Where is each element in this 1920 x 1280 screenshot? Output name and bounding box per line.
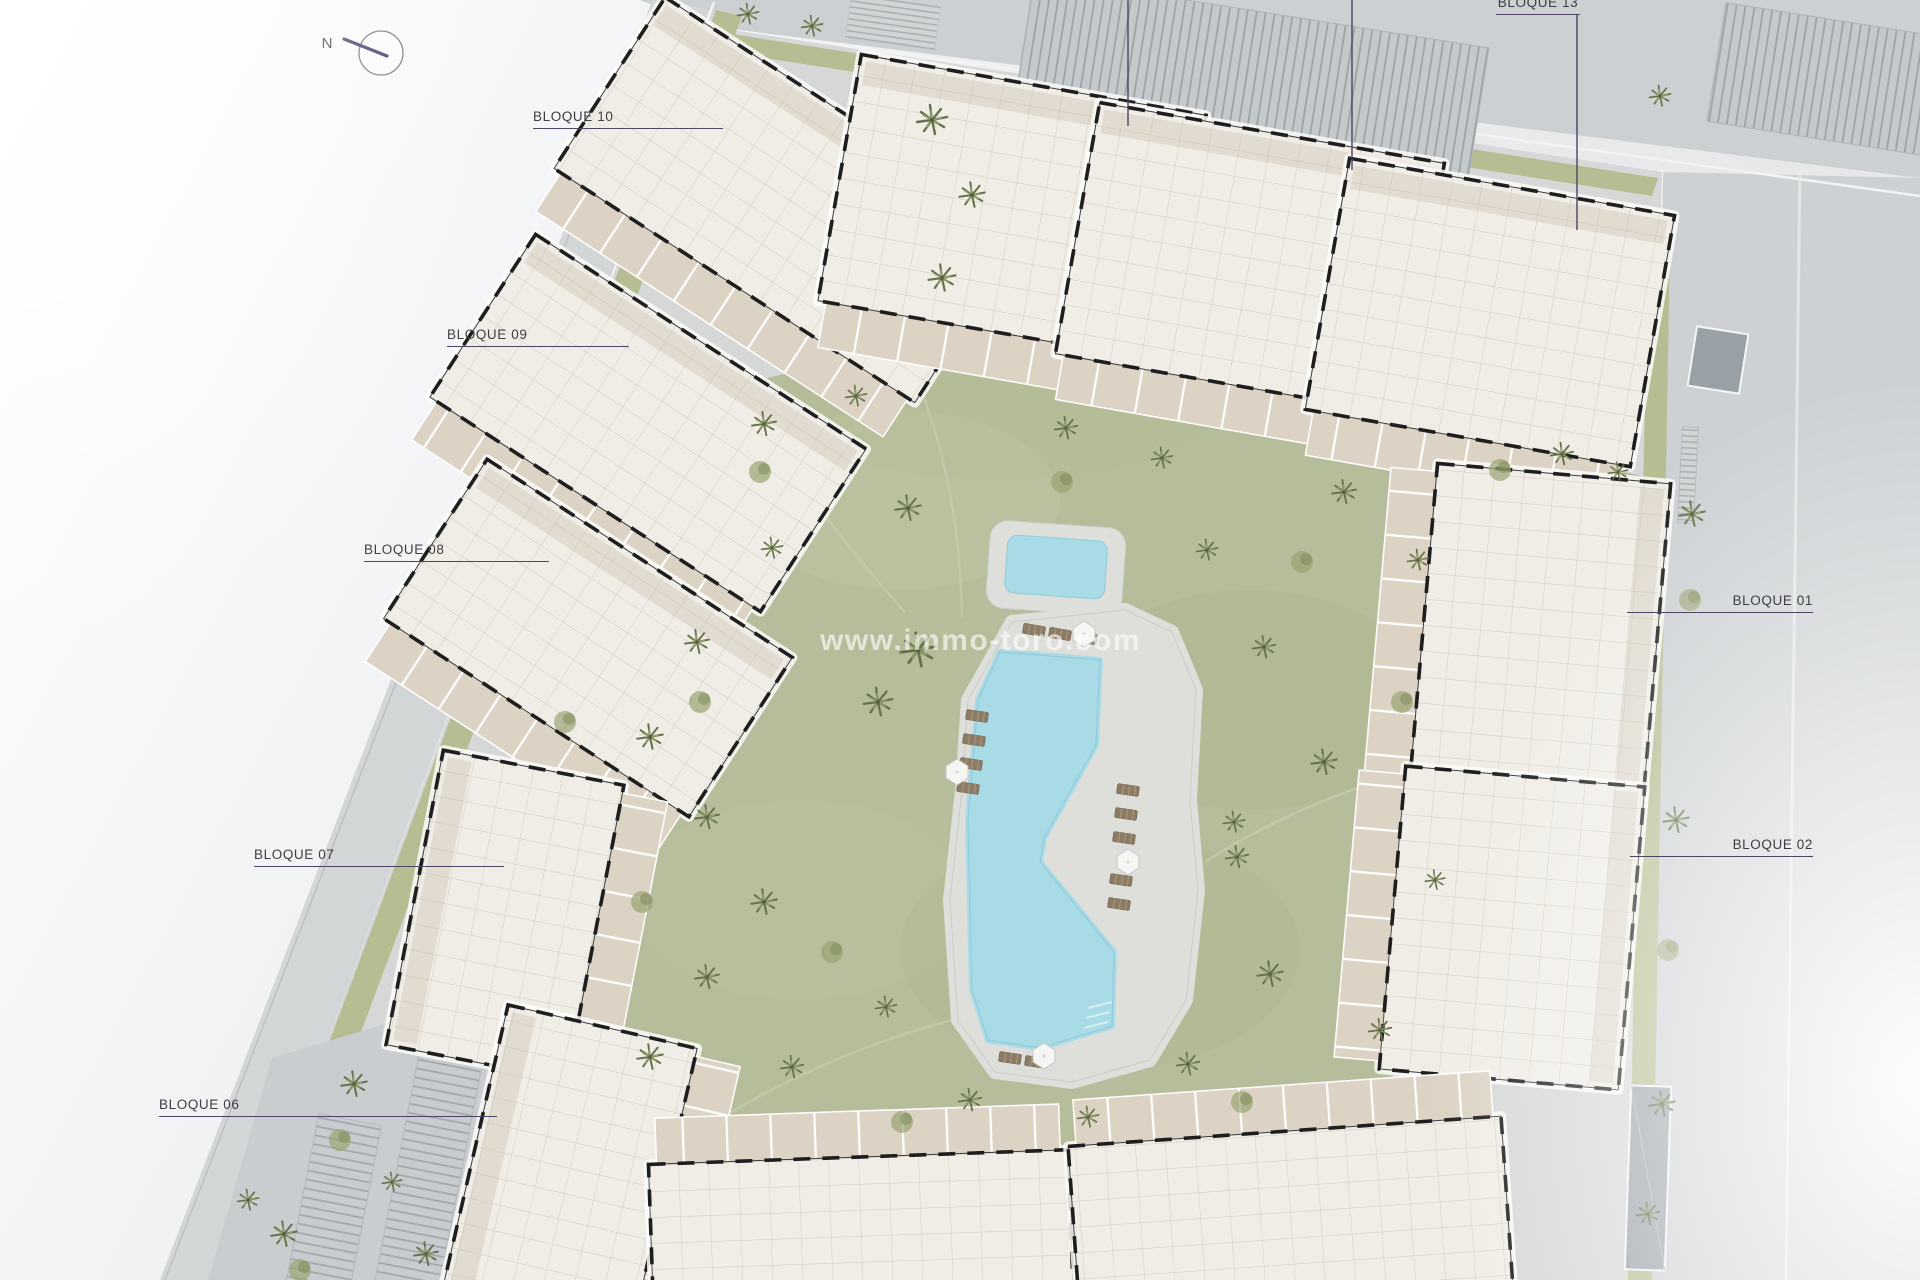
label-bloque-06: BLOQUE 06 [159,1098,497,1117]
building-bottom-a [642,1104,1081,1280]
utility-box [1688,326,1749,393]
building-bottom-b [1060,1070,1521,1280]
compass-north-letter: N [322,35,333,52]
label-bloque-09: BLOQUE 09 [447,328,629,347]
label-bloque-08: BLOQUE 08 [364,543,549,562]
label-bloque-10: BLOQUE 10 [533,110,723,129]
label-bloque-01: BLOQUE 01 [1627,594,1813,613]
watermark: www.immo-toro.com [820,624,1141,658]
building-block-01 [1363,454,1676,812]
label-bloque-07: BLOQUE 07 [254,848,504,867]
label-bloque-02: BLOQUE 02 [1630,838,1813,857]
main-pool [946,610,1198,1082]
building-block-13 [1293,152,1681,511]
kids-pool [985,519,1127,616]
north-compass-icon: N [322,31,403,75]
label-bloque-13: BLOQUE 13 [1496,0,1580,15]
building-block-02 [1333,757,1650,1095]
site-plan-image: N www.immo-toro.com BLOQUE 10 BLOQUE 09 … [0,0,1920,1280]
